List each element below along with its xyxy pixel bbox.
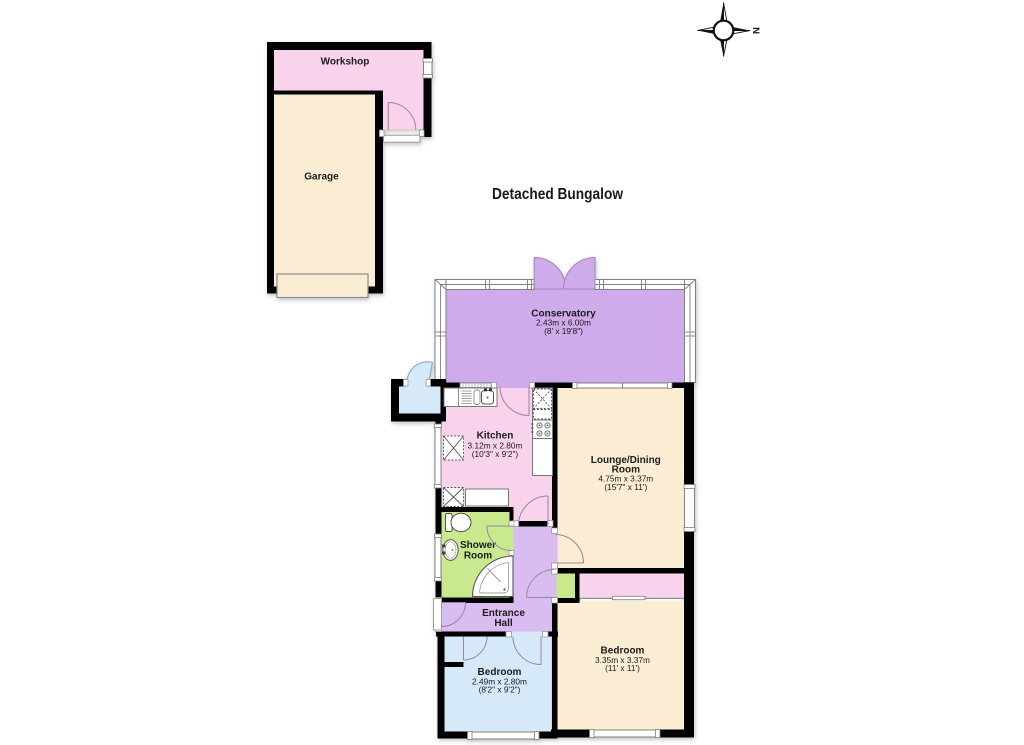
svg-text:(11' x 11'): (11' x 11')	[605, 663, 640, 673]
svg-text:(8' x 19'8"): (8' x 19'8")	[544, 326, 583, 336]
svg-text:N: N	[750, 27, 761, 34]
svg-text:(15'7" x 11'): (15'7" x 11')	[604, 482, 647, 492]
svg-text:(10'3" x 9'2"): (10'3" x 9'2")	[472, 449, 519, 459]
svg-text:(8'2" x 9'2"): (8'2" x 9'2")	[479, 684, 521, 694]
svg-text:Room: Room	[464, 551, 492, 562]
svg-text:Garage: Garage	[304, 172, 339, 183]
svg-text:Shower: Shower	[460, 540, 496, 551]
svg-text:Detached Bungalow: Detached Bungalow	[492, 186, 623, 203]
svg-text:Hall: Hall	[494, 618, 513, 629]
svg-text:Workshop: Workshop	[321, 57, 370, 68]
